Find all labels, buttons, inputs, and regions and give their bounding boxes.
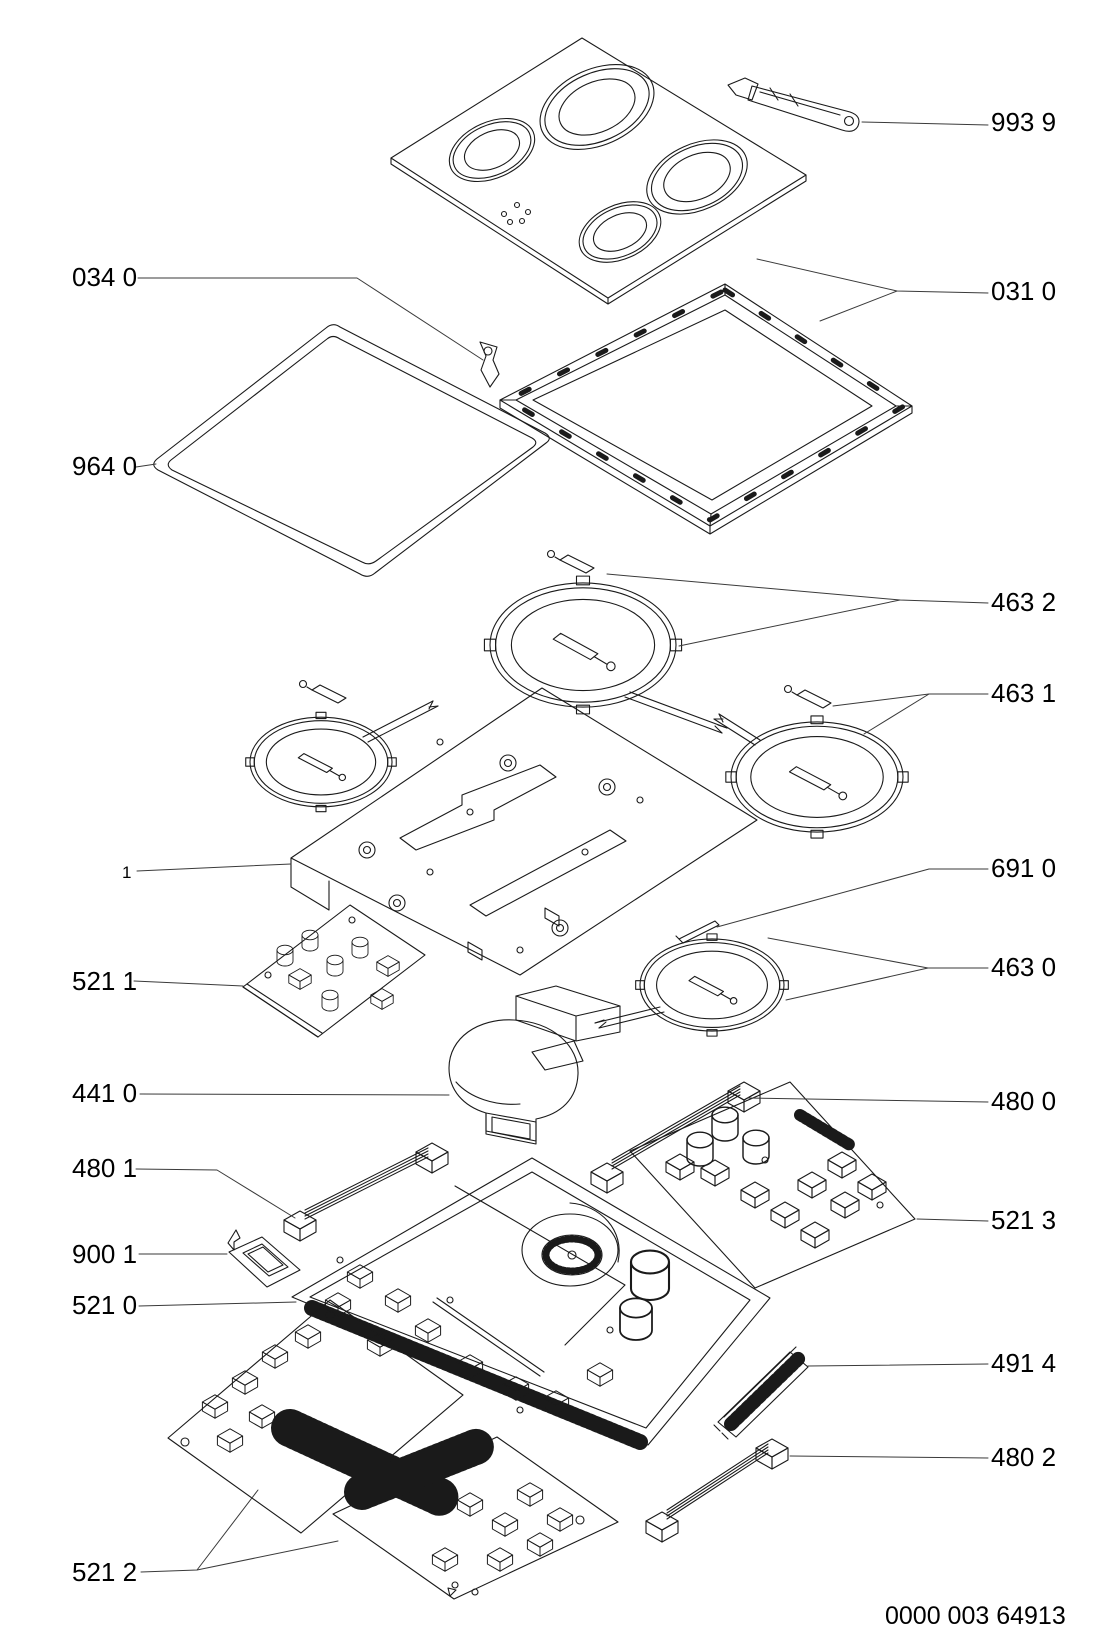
leader-480-1: [136, 1169, 295, 1218]
leader-521-2-branch: [197, 1541, 338, 1570]
induction-coil-463-2: [484, 551, 727, 734]
power-board-521-2-upper: [168, 1300, 463, 1533]
mounting-plate-1: [291, 688, 757, 975]
callout-521-3: 521 3: [991, 1205, 1056, 1235]
callout-480-1: 480 1: [72, 1153, 137, 1183]
callout-691-0: 691 0: [991, 853, 1056, 883]
leader-463-2: [607, 574, 988, 603]
power-board-521-3: [630, 1082, 915, 1288]
exploded-parts-diagram: 993 9 031 0 463 2 463 1 691 0 463 0 480 …: [0, 0, 1100, 1647]
callout-964-0: 964 0: [72, 451, 137, 481]
callout-521-2: 521 2: [72, 1557, 137, 1587]
coil-sensor: [300, 681, 347, 704]
leader-463-1-branch: [864, 694, 929, 734]
seal-gasket-964-0: [154, 325, 550, 577]
control-dots: [502, 203, 531, 225]
connector-rail-480-0: [591, 1082, 760, 1193]
callout-993-9: 993 9: [991, 107, 1056, 137]
leader-521-2: [141, 1490, 258, 1572]
leader-463-0: [768, 938, 988, 968]
leader-521-3: [917, 1219, 988, 1221]
induction-coil-463-0: [595, 934, 788, 1036]
callout-034-0: 034 0: [72, 262, 137, 292]
induction-coil-463-1-left: [246, 681, 438, 812]
connector-rail-480-2: [646, 1439, 788, 1542]
leader-034-0: [138, 278, 483, 360]
leader-031-0-branch: [820, 291, 897, 321]
control-board-521-1: [243, 905, 425, 1037]
fixing-clip-034-0: [480, 342, 499, 387]
leader-480-2: [790, 1456, 988, 1458]
base-housing-521-0: [292, 1158, 770, 1445]
callout-031-0: 031 0: [991, 276, 1056, 306]
fan-mount-bracket: [516, 986, 620, 1041]
leader-1: [137, 864, 291, 871]
mounting-bracket-993-9: [728, 78, 859, 131]
induction-coil-463-1-right: [714, 686, 908, 839]
leader-031-0: [757, 259, 988, 293]
callout-463-2: 463 2: [991, 587, 1056, 617]
coil-sensor: [785, 686, 832, 709]
burner-zone-left: [440, 106, 545, 194]
callout-480-2: 480 2: [991, 1442, 1056, 1472]
callout-441-0: 441 0: [72, 1078, 137, 1108]
leader-463-2-branch: [679, 600, 900, 646]
callout-491-4: 491 4: [991, 1348, 1056, 1378]
callout-900-1: 900 1: [72, 1239, 137, 1269]
coil-sensor: [548, 551, 595, 574]
leader-993-9: [862, 122, 988, 125]
callout-521-0: 521 0: [72, 1290, 137, 1320]
callout-463-0: 463 0: [991, 952, 1056, 982]
leader-463-1: [833, 694, 988, 706]
burner-zone-front: [570, 190, 671, 274]
glass-ceramic-panel: [391, 38, 806, 304]
leader-691-0: [717, 869, 988, 927]
leader-521-0: [139, 1302, 296, 1306]
document-code: 0000 003 64913: [885, 1602, 1066, 1630]
leader-441-0: [140, 1094, 449, 1095]
parts-diagram-page: 993 9 031 0 463 2 463 1 691 0 463 0 480 …: [0, 0, 1100, 1647]
callout-480-0: 480 0: [991, 1086, 1056, 1116]
connector-rail-480-1: [284, 1143, 448, 1241]
cooling-fan-441-0: [449, 986, 620, 1144]
air-vent-491-4: [714, 1347, 808, 1439]
leader-463-0-branch: [786, 968, 928, 1000]
support-frame-031-0: [500, 284, 912, 534]
leader-964-0: [136, 464, 156, 467]
contact-clip-900-1: [228, 1230, 300, 1287]
callout-521-1: 521 1: [72, 966, 137, 996]
leader-480-0: [748, 1098, 988, 1102]
burner-zone-large: [527, 48, 668, 166]
callout-1: 1: [122, 863, 131, 882]
callout-463-1: 463 1: [991, 678, 1056, 708]
leader-491-4: [808, 1364, 988, 1366]
leader-521-1: [134, 981, 243, 986]
